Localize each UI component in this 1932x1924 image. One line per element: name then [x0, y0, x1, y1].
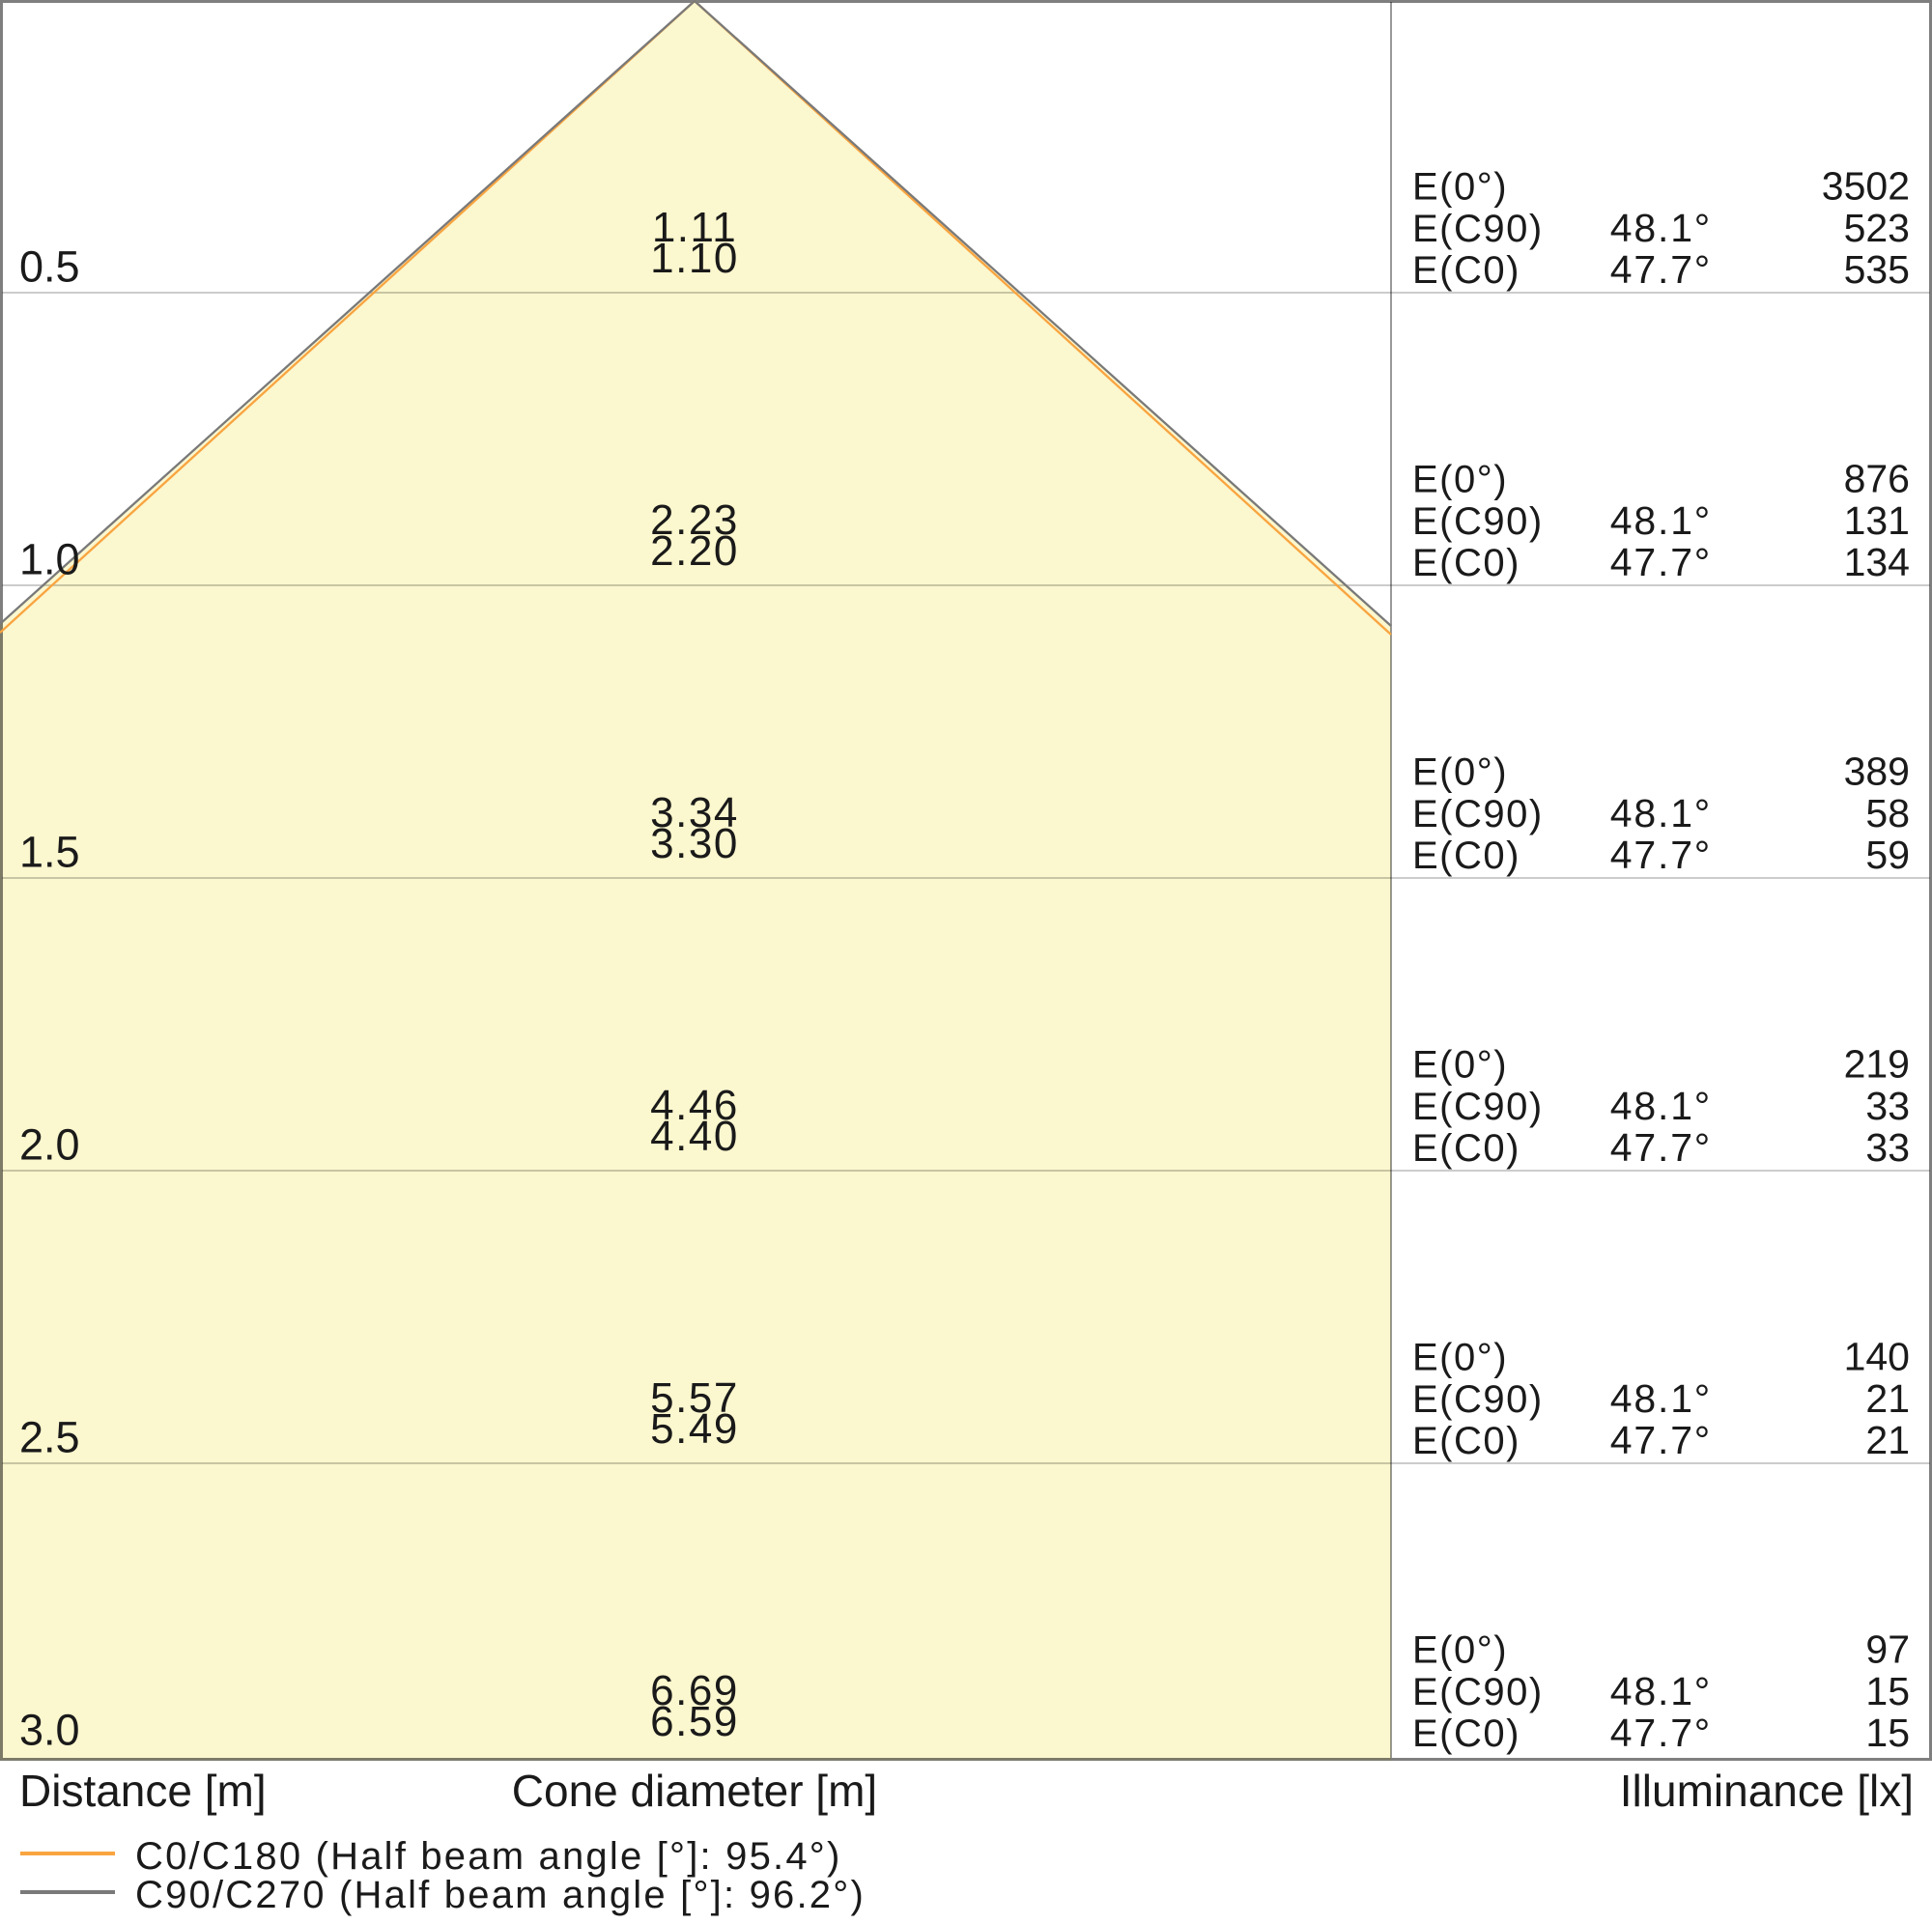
svg-text:48.1°: 48.1°	[1610, 206, 1712, 250]
svg-text:1.10: 1.10	[650, 235, 739, 282]
svg-text:2.20: 2.20	[650, 527, 739, 575]
svg-text:15: 15	[1865, 1711, 1910, 1755]
svg-text:389: 389	[1844, 750, 1910, 794]
svg-text:47.7°: 47.7°	[1610, 540, 1712, 584]
svg-text:15: 15	[1865, 1669, 1910, 1713]
svg-text:876: 876	[1844, 457, 1910, 501]
svg-text:0.5: 0.5	[19, 242, 80, 292]
svg-text:E(C0): E(C0)	[1412, 1420, 1520, 1462]
svg-text:3.0: 3.0	[19, 1706, 80, 1755]
svg-text:E(C90): E(C90)	[1412, 1086, 1544, 1128]
svg-text:21: 21	[1865, 1418, 1910, 1462]
svg-text:140: 140	[1844, 1335, 1910, 1379]
svg-text:131: 131	[1844, 498, 1910, 543]
svg-text:3.30: 3.30	[650, 820, 739, 867]
svg-text:2.5: 2.5	[19, 1413, 80, 1462]
svg-text:21: 21	[1865, 1376, 1910, 1421]
svg-text:47.7°: 47.7°	[1610, 1418, 1712, 1462]
svg-text:5.49: 5.49	[650, 1405, 739, 1453]
svg-text:47.7°: 47.7°	[1610, 1711, 1712, 1755]
svg-text:523: 523	[1844, 206, 1910, 250]
svg-text:48.1°: 48.1°	[1610, 791, 1712, 835]
svg-text:58: 58	[1865, 791, 1910, 835]
svg-text:33: 33	[1865, 1125, 1910, 1170]
svg-text:E(0°): E(0°)	[1412, 1337, 1508, 1379]
svg-text:535: 535	[1844, 247, 1910, 292]
svg-text:33: 33	[1865, 1084, 1910, 1128]
svg-text:E(C90): E(C90)	[1412, 793, 1544, 835]
svg-text:47.7°: 47.7°	[1610, 1125, 1712, 1170]
svg-text:219: 219	[1844, 1042, 1910, 1087]
svg-text:E(0°): E(0°)	[1412, 166, 1508, 209]
svg-text:Illuminance [lx]: Illuminance [lx]	[1620, 1766, 1914, 1816]
svg-text:E(0°): E(0°)	[1412, 1629, 1508, 1672]
svg-text:E(C90): E(C90)	[1412, 208, 1544, 250]
svg-text:1.0: 1.0	[19, 535, 80, 584]
svg-text:2.0: 2.0	[19, 1120, 80, 1170]
svg-text:E(0°): E(0°)	[1412, 1044, 1508, 1087]
svg-text:E(C0): E(C0)	[1412, 249, 1520, 292]
svg-text:48.1°: 48.1°	[1610, 498, 1712, 543]
svg-text:E(C0): E(C0)	[1412, 1127, 1520, 1170]
svg-text:E(0°): E(0°)	[1412, 751, 1508, 794]
svg-text:E(C0): E(C0)	[1412, 835, 1520, 877]
svg-text:47.7°: 47.7°	[1610, 833, 1712, 877]
svg-text:E(C90): E(C90)	[1412, 1378, 1544, 1421]
svg-text:C0/C180 (Half beam angle [°]:: C0/C180 (Half beam angle [°]: 95.4°)	[135, 1835, 842, 1878]
svg-text:47.7°: 47.7°	[1610, 247, 1712, 292]
svg-text:E(C90): E(C90)	[1412, 1671, 1544, 1713]
svg-text:134: 134	[1844, 540, 1910, 584]
svg-text:6.59: 6.59	[650, 1698, 739, 1745]
svg-text:97: 97	[1865, 1627, 1910, 1672]
svg-text:E(C0): E(C0)	[1412, 542, 1520, 584]
svg-text:E(0°): E(0°)	[1412, 459, 1508, 501]
svg-text:Distance [m]: Distance [m]	[19, 1766, 267, 1816]
svg-text:Cone diameter [m]: Cone diameter [m]	[512, 1766, 877, 1816]
svg-text:E(C0): E(C0)	[1412, 1712, 1520, 1755]
svg-text:48.1°: 48.1°	[1610, 1669, 1712, 1713]
svg-text:59: 59	[1865, 833, 1910, 877]
svg-text:48.1°: 48.1°	[1610, 1376, 1712, 1421]
svg-text:4.40: 4.40	[650, 1113, 739, 1160]
svg-text:3502: 3502	[1822, 164, 1910, 209]
svg-text:48.1°: 48.1°	[1610, 1084, 1712, 1128]
svg-text:E(C90): E(C90)	[1412, 500, 1544, 543]
svg-text:1.5: 1.5	[19, 828, 80, 877]
svg-text:C90/C270 (Half beam angle [°]:: C90/C270 (Half beam angle [°]: 96.2°)	[135, 1874, 866, 1916]
